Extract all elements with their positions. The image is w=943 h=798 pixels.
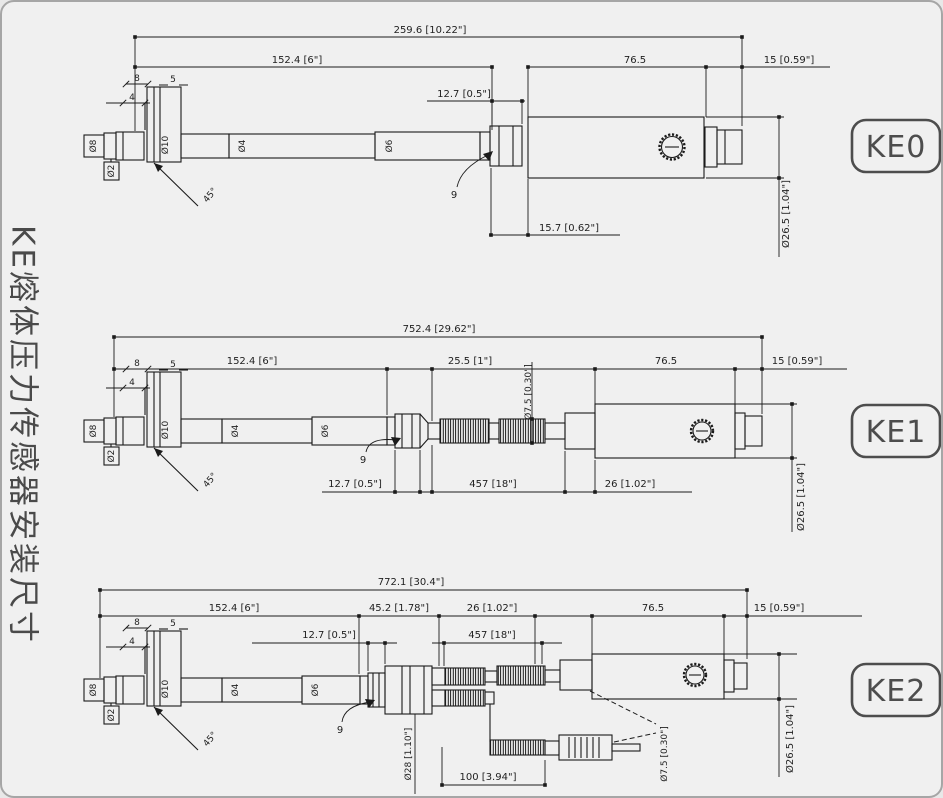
ke1-badge: KE1 bbox=[852, 405, 940, 457]
ke2-flex-conduit-top-1 bbox=[445, 668, 485, 685]
ke1-hex-width-label: 9 bbox=[360, 455, 366, 466]
ke0-body bbox=[181, 117, 742, 178]
ke2-dim-tc-cable: 100 [3.94"] bbox=[460, 772, 517, 783]
ke1-dim-conduit-dia: Ø7.5 [0.30"] bbox=[523, 364, 534, 419]
ke2-flex-conduit-bottom bbox=[445, 690, 485, 706]
ke2-tc-cable-coil bbox=[490, 740, 545, 755]
ke0-dim-total: 259.6 [10.22"] bbox=[394, 25, 467, 36]
ke0-badge-label: KE0 bbox=[866, 130, 927, 165]
diagram-canvas: 8 5 4 Ø8 Ø2 Ø10 45° bbox=[2, 2, 943, 798]
ke2-badge-label: KE2 bbox=[866, 674, 927, 709]
ke1-dim-total: 752.4 [29.62"] bbox=[403, 324, 476, 335]
ke2-dim-stem: 152.4 [6"] bbox=[209, 603, 260, 614]
ke0-drawing: 259.6 [10.22"] 152.4 [6"] 76.5 15 [0.59"… bbox=[84, 25, 940, 257]
ke1-drawing: 752.4 [29.62"] 152.4 [6"] 25.5 [1"] 76.5… bbox=[84, 324, 940, 532]
ke1-dim-rear: 15 [0.59"] bbox=[772, 356, 823, 367]
ke2-drawing: 772.1 [30.4"] 152.4 [6"] 45.2 [1.78"] 26… bbox=[84, 577, 940, 794]
ke1-flex-conduit-1 bbox=[440, 419, 489, 443]
ke0-dim-stem-b-dia: Ø6 bbox=[384, 139, 395, 152]
ke2-dim-rear: 15 [0.59"] bbox=[754, 603, 805, 614]
ke2-badge: KE2 bbox=[852, 664, 940, 716]
ke1-dim-stem-a-dia: Ø4 bbox=[230, 424, 241, 437]
ke0-dim-rear: 15 [0.59"] bbox=[764, 55, 815, 66]
ke1-dim-flex-conduit: 457 [18"] bbox=[469, 479, 516, 490]
ke0-hex-width-label: 9 bbox=[451, 190, 457, 201]
ke1-dim-stem: 152.4 [6"] bbox=[227, 356, 278, 367]
ke2-dim-plug-dia: Ø7.5 [0.30"] bbox=[659, 726, 670, 781]
ke1-badge-label: KE1 bbox=[866, 415, 927, 450]
ke2-dim-housing-dia: Ø26.5 [1.04"] bbox=[784, 705, 796, 773]
ke2-dim-stem-a-dia: Ø4 bbox=[230, 683, 241, 696]
ke2-dim-housing: 76.5 bbox=[642, 603, 664, 614]
ke2-dim-coupling: 26 [1.02"] bbox=[467, 603, 518, 614]
ke0-dim-nut-to-housing: 15.7 [0.62"] bbox=[539, 223, 599, 234]
page: KE熔体压力传感器安装尺寸 bbox=[0, 0, 943, 798]
ke0-dim-stem: 152.4 [6"] bbox=[272, 55, 323, 66]
ke1-dim-housing: 76.5 bbox=[655, 356, 677, 367]
ke1-flex-conduit-2 bbox=[499, 419, 545, 443]
ke0-dim-housing: 76.5 bbox=[624, 55, 646, 66]
ke2-hex-width-label: 9 bbox=[337, 725, 343, 736]
ke0-dim-hex-nut: 12.7 [0.5"] bbox=[437, 89, 491, 100]
ke2-dim-total: 772.1 [30.4"] bbox=[378, 577, 445, 588]
ke1-dim-stem-b-dia: Ø6 bbox=[320, 424, 331, 437]
ke2-dim-flex-conduit: 457 [18"] bbox=[468, 630, 515, 641]
ke2-dim-stem-b-dia: Ø6 bbox=[310, 683, 321, 696]
ke1-dim-coupling: 26 [1.02"] bbox=[605, 479, 656, 490]
ke2-flex-conduit-top-2 bbox=[497, 666, 545, 685]
ke1-dim-housing-dia: Ø26.5 [1.04"] bbox=[795, 463, 807, 531]
ke2-dim-coupling-dia: Ø28 [1.10"] bbox=[403, 728, 414, 781]
ke0-dim-housing-dia: Ø26.5 [1.04"] bbox=[780, 180, 792, 248]
ke2-dim-transition: 45.2 [1.78"] bbox=[369, 603, 429, 614]
ke2-dim-hex-nut: 12.7 [0.5"] bbox=[302, 630, 356, 641]
ke0-dim-stem-a-dia: Ø4 bbox=[237, 139, 248, 152]
ke1-dim-hex-nut: 12.7 [0.5"] bbox=[328, 479, 382, 490]
ke0-badge: KE0 bbox=[852, 120, 940, 172]
ke1-dim-hex-section: 25.5 [1"] bbox=[448, 356, 492, 367]
